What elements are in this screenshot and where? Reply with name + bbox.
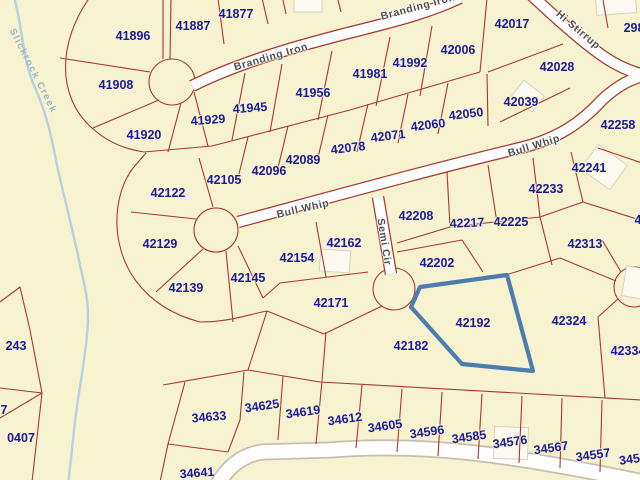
parcel-label-34619[interactable]: 34619 [285,403,321,422]
parcel-label-4[interactable]: 4 [635,213,640,227]
parcel-label-42139[interactable]: 42139 [169,281,204,295]
parcel-label-41929[interactable]: 41929 [190,112,226,128]
parcel-label-34633[interactable]: 34633 [191,409,227,426]
parcel-label-41956[interactable]: 41956 [296,86,331,100]
parcel-label-42258[interactable]: 42258 [601,118,636,132]
parcel-label-41920[interactable]: 41920 [127,128,162,142]
parcel-label-42154[interactable]: 42154 [280,251,315,265]
street-label-branding-iron: Branding Iron [233,41,310,74]
parcel-label-34585[interactable]: 34585 [451,428,487,447]
street-label-bull-whip: Bull Whip [275,197,330,221]
parcel-label-41992[interactable]: 41992 [393,56,428,70]
parcel-label-42324[interactable]: 42324 [552,314,587,328]
parcel-label-42105[interactable]: 42105 [207,173,242,187]
parcel-label-7[interactable]: 7 [1,403,8,417]
parcel-label-42145[interactable]: 42145 [231,271,266,285]
street-label-semi-cir: Semi Cir [374,218,393,267]
parcel-label-42202[interactable]: 42202 [420,256,455,270]
parcel-label-41908[interactable]: 41908 [99,78,134,92]
parcel-label-42071[interactable]: 42071 [370,127,406,145]
parcel-label-243[interactable]: 243 [6,339,27,353]
parcel-label-42096[interactable]: 42096 [252,164,287,178]
parcel-label-42122[interactable]: 42122 [151,186,186,200]
parcel-label-42089[interactable]: 42089 [286,153,321,167]
parcel-label-41945[interactable]: 41945 [232,100,268,116]
parcel-label-42182[interactable]: 42182 [394,339,429,353]
map-labels: Slickrock Creek 418774188741896419084192… [0,0,640,480]
parcel-label-42028[interactable]: 42028 [540,60,575,74]
parcel-label-42078[interactable]: 42078 [330,139,366,157]
parcel-label-42313[interactable]: 42313 [568,237,603,251]
parcel-label-34576[interactable]: 34576 [492,433,528,452]
parcel-label-34596[interactable]: 34596 [409,423,445,442]
parcel-label-34641[interactable]: 34641 [179,465,215,480]
parcel-label-42129[interactable]: 42129 [143,237,178,251]
parcel-label-34557[interactable]: 34557 [575,446,611,465]
parcel-map: Slickrock Creek 418774188741896419084192… [0,0,640,480]
parcel-label-42171[interactable]: 42171 [314,296,349,310]
parcel-label-42208[interactable]: 42208 [399,209,434,223]
parcel-label-34567[interactable]: 34567 [533,439,569,458]
street-label-hi-stirrup: Hi Stirrup [554,8,603,52]
parcel-label-42217[interactable]: 42217 [449,215,484,231]
parcel-label-42241[interactable]: 42241 [572,161,607,175]
creek-label: Slickrock Creek [7,27,59,116]
parcel-label-42225[interactable]: 42225 [494,215,529,229]
parcel-label-0407[interactable]: 0407 [7,431,35,445]
parcel-label-41877[interactable]: 41877 [219,7,254,21]
parcel-label-42017[interactable]: 42017 [495,17,530,31]
parcel-label-41981[interactable]: 41981 [353,67,388,81]
parcel-label-41887[interactable]: 41887 [176,19,211,33]
street-label-branding-iron: Branding Iron [379,0,456,23]
parcel-label-42060[interactable]: 42060 [410,116,446,134]
parcel-label-42162[interactable]: 42162 [327,236,362,250]
parcel-label-34612[interactable]: 34612 [327,410,363,429]
street-label-bull-whip: Bull Whip [507,132,562,159]
parcel-label-34605[interactable]: 34605 [367,417,403,436]
parcel-label-42334[interactable]: 42334 [611,344,640,358]
parcel-label-42006[interactable]: 42006 [441,43,476,57]
parcel-label-42039[interactable]: 42039 [504,95,539,109]
parcel-label-34625[interactable]: 34625 [244,397,280,416]
parcel-label-42233[interactable]: 42233 [529,182,564,196]
parcel-label-298[interactable]: 298 [624,21,640,35]
parcel-label-3454[interactable]: 3454 [618,450,640,468]
parcel-label-42192[interactable]: 42192 [456,316,491,330]
parcel-label-42050[interactable]: 42050 [448,105,484,123]
parcel-label-41896[interactable]: 41896 [116,29,151,43]
